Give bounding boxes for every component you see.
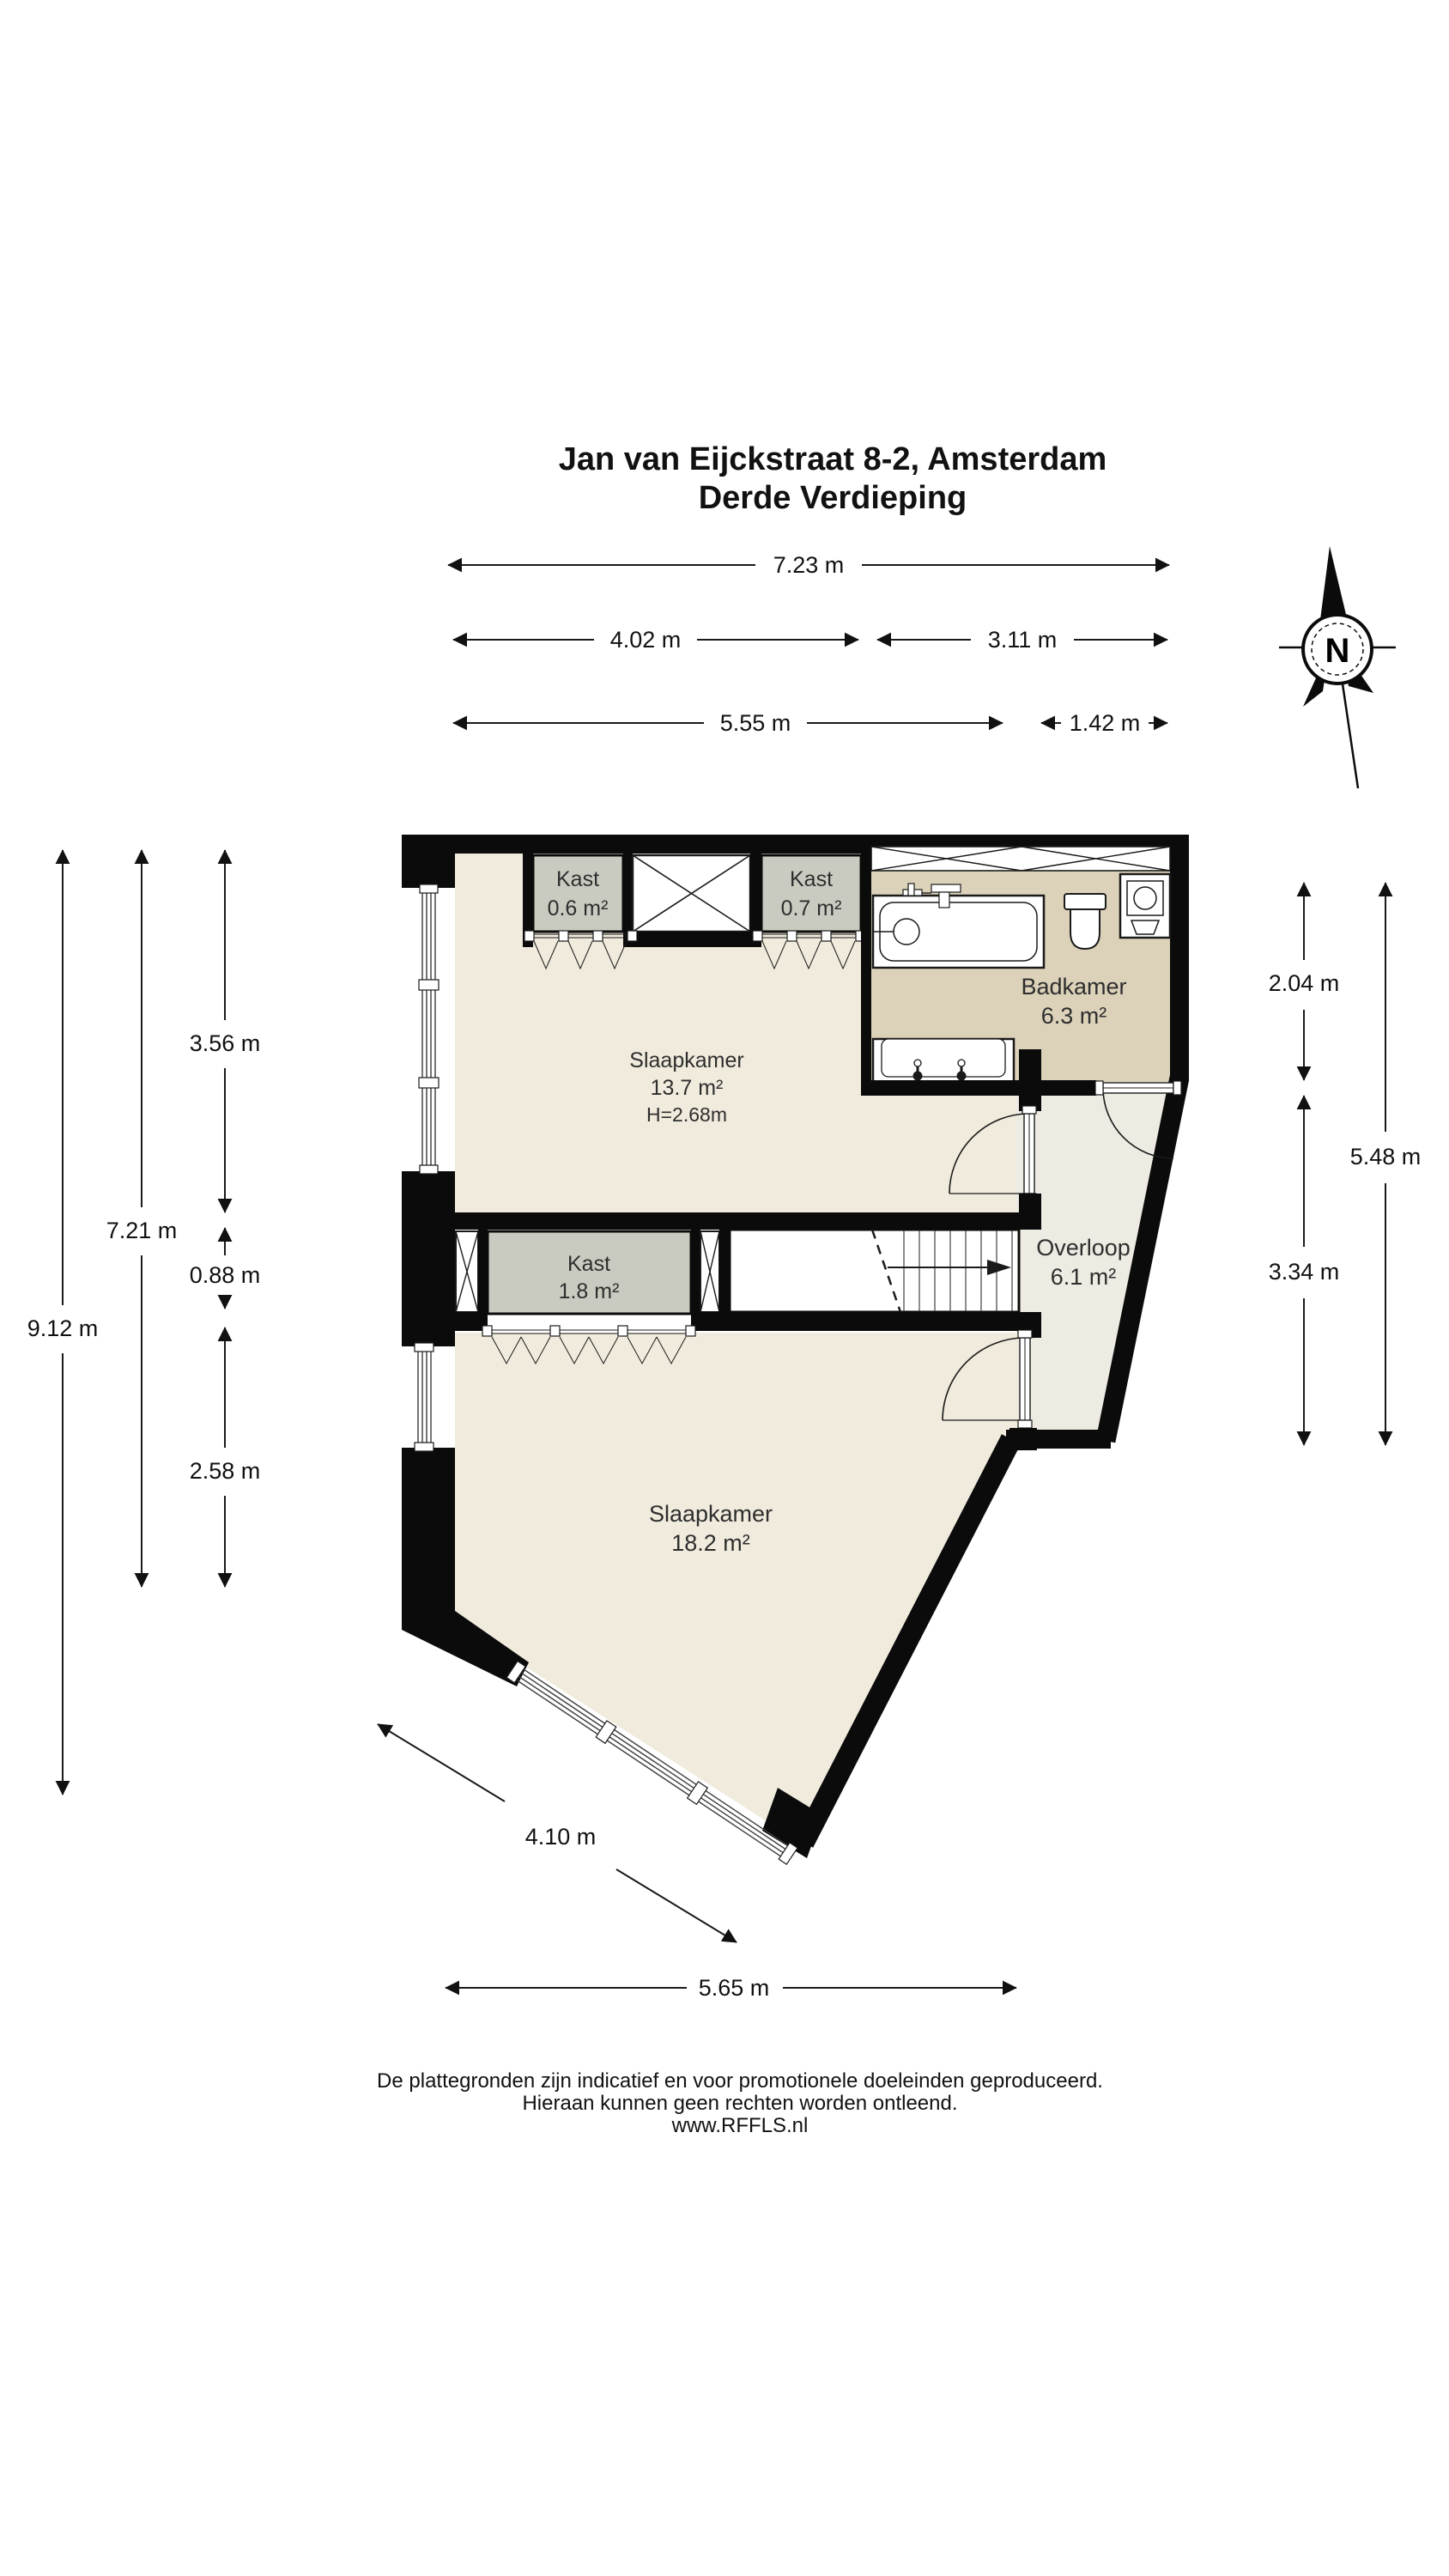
dimension-lines-right: 2.04 m 3.34 m 5.48 m: [1269, 883, 1422, 1445]
column-x-left: [456, 1231, 478, 1312]
slaapkamer-achter-label: Slaapkamer: [649, 1501, 773, 1527]
slaapkamer-voor-label: Slaapkamer: [629, 1048, 743, 1072]
slaapkamer-voor-area: 13.7 m²: [651, 1076, 724, 1100]
floorplan-canvas: Jan van Eijckstraat 8-2, Amsterdam Derde…: [0, 0, 1449, 2576]
badkamer-area: 6.3 m²: [1041, 1003, 1107, 1029]
dimension-lines-left: 9.12 m 7.21 m 3.56 m 0.88 m 2.58 m: [27, 850, 261, 1795]
compass-north-label: N: [1325, 632, 1350, 670]
footer-line1: De plattegronden zijn indicatief en voor…: [377, 2069, 1103, 2093]
kast-b-label: Kast: [790, 867, 833, 891]
bathtub-icon: [873, 884, 1044, 968]
overloop-area: 6.1 m²: [1051, 1264, 1117, 1290]
shaft-x-box: [633, 855, 750, 932]
kast-a-area: 0.6 m²: [548, 896, 609, 920]
dim-bottom-diag: 4.10 m: [525, 1824, 597, 1850]
window-left-upper: [419, 884, 439, 1174]
room-floors: [455, 852, 1175, 1843]
dim-top-total: 7.23 m: [773, 552, 845, 578]
washing-machine-icon: [1120, 874, 1170, 938]
window-left-lower: [415, 1343, 433, 1451]
kast-c-label: Kast: [567, 1252, 610, 1276]
badkamer-label: Badkamer: [1021, 974, 1126, 999]
kast-a-label: Kast: [556, 867, 599, 891]
dim-left-total: 9.12 m: [27, 1315, 99, 1341]
dim-left-b: 0.88 m: [190, 1262, 261, 1288]
dim-left-a: 3.56 m: [190, 1030, 261, 1056]
slaapkamer-achter-area: 18.2 m²: [671, 1530, 750, 1556]
disclaimer-footer: De plattegronden zijn indicatief en voor…: [377, 2069, 1103, 2137]
dim-top-lower-right: 1.42 m: [1070, 710, 1141, 736]
title-floor: Derde Verdieping: [699, 480, 967, 516]
dim-bottom-total: 5.65 m: [699, 1975, 770, 2001]
page-title: Jan van Eijckstraat 8-2, Amsterdam Derde…: [559, 441, 1107, 516]
dim-left-inner: 7.21 m: [106, 1218, 178, 1243]
kast-b-area: 0.7 m²: [781, 896, 842, 920]
dim-top-left: 4.02 m: [610, 627, 682, 653]
north-compass-icon: N: [1279, 546, 1396, 788]
dim-top-lower-left: 5.55 m: [720, 710, 791, 736]
dim-right-b: 3.34 m: [1269, 1259, 1340, 1285]
footer-line2: Hieraan kunnen geen rechten worden ontle…: [522, 2092, 957, 2115]
column-x-right: [700, 1231, 719, 1312]
kast-c-area: 1.8 m²: [559, 1279, 620, 1303]
dimension-lines-top: 7.23 m 4.02 m 3.11 m 5.55 m 1.42 m: [448, 552, 1169, 736]
dim-left-c: 2.58 m: [190, 1458, 261, 1484]
footer-line3: www.RFFLS.nl: [671, 2114, 809, 2137]
shaft-x-strip: [871, 847, 1170, 871]
floorplan-page: Jan van Eijckstraat 8-2, Amsterdam Derde…: [0, 0, 1449, 2576]
sink-counter-icon: [873, 1039, 1014, 1084]
overloop-label: Overloop: [1036, 1235, 1131, 1261]
dim-right-total: 5.48 m: [1350, 1144, 1422, 1170]
slaapkamer-voor-height: H=2.68m: [646, 1103, 727, 1126]
title-address: Jan van Eijckstraat 8-2, Amsterdam: [559, 441, 1107, 477]
dim-top-right: 3.11 m: [988, 627, 1058, 653]
dim-right-a: 2.04 m: [1269, 970, 1340, 996]
staircase: [730, 1230, 1019, 1312]
